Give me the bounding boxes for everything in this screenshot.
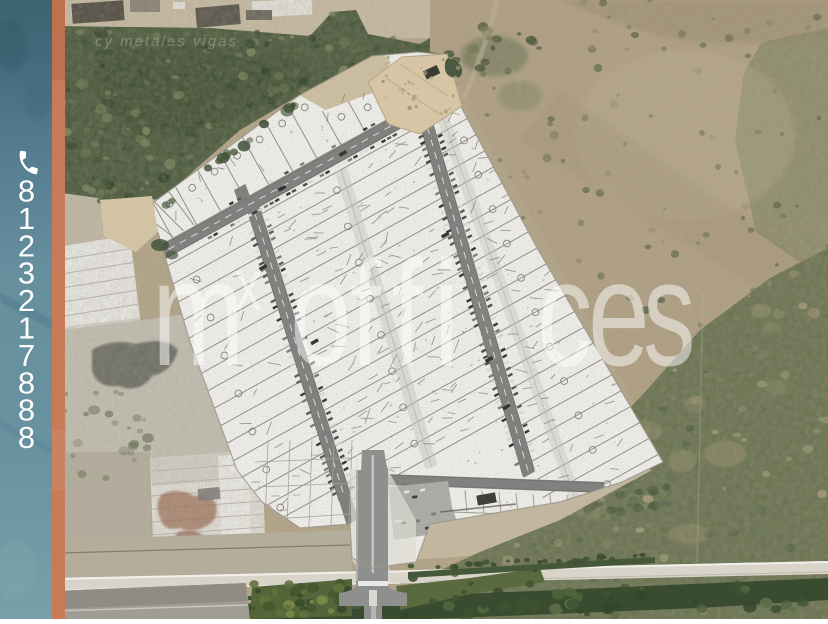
svg-text:8: 8 bbox=[18, 420, 35, 455]
svg-text:o: o bbox=[290, 230, 352, 397]
svg-text:cy metales vigas: cy metales vigas bbox=[95, 33, 238, 50]
svg-text:i: i bbox=[433, 229, 460, 397]
svg-text:e: e bbox=[588, 230, 650, 397]
svg-text:f: f bbox=[350, 230, 381, 397]
svg-text:m: m bbox=[152, 230, 244, 397]
svg-text:s: s bbox=[643, 231, 695, 398]
svg-text:f: f bbox=[392, 230, 423, 397]
svg-text:x: x bbox=[235, 246, 262, 326]
svg-text:c: c bbox=[537, 230, 592, 397]
